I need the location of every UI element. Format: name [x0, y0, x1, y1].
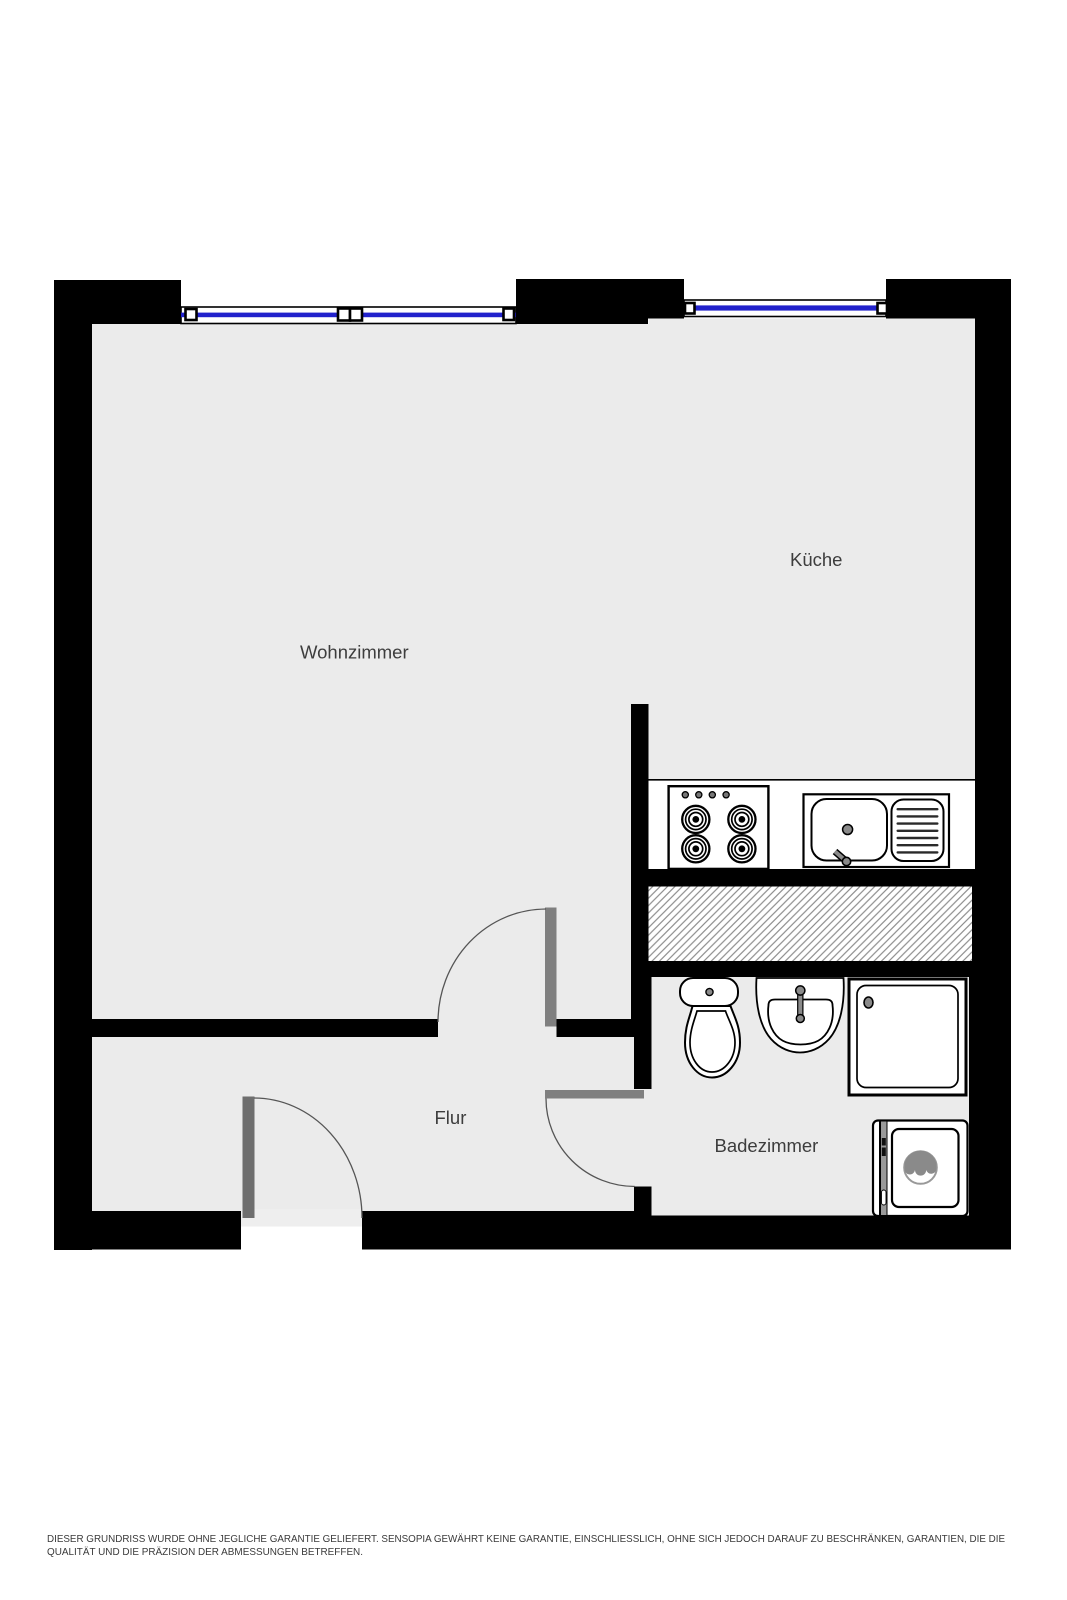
svg-text:QUALITÄT UND DIE PRÄZISION DER: QUALITÄT UND DIE PRÄZISION DER ABMESSUNG…: [47, 1546, 363, 1558]
svg-text:Wohnzimmer: Wohnzimmer: [300, 642, 409, 663]
svg-text:Badezimmer: Badezimmer: [715, 1135, 819, 1156]
svg-text:Flur: Flur: [435, 1107, 467, 1128]
svg-text:DIESER GRUNDRISS WURDE OHNE JE: DIESER GRUNDRISS WURDE OHNE JEGLICHE GAR…: [47, 1533, 1005, 1545]
svg-text:Küche: Küche: [790, 549, 842, 570]
